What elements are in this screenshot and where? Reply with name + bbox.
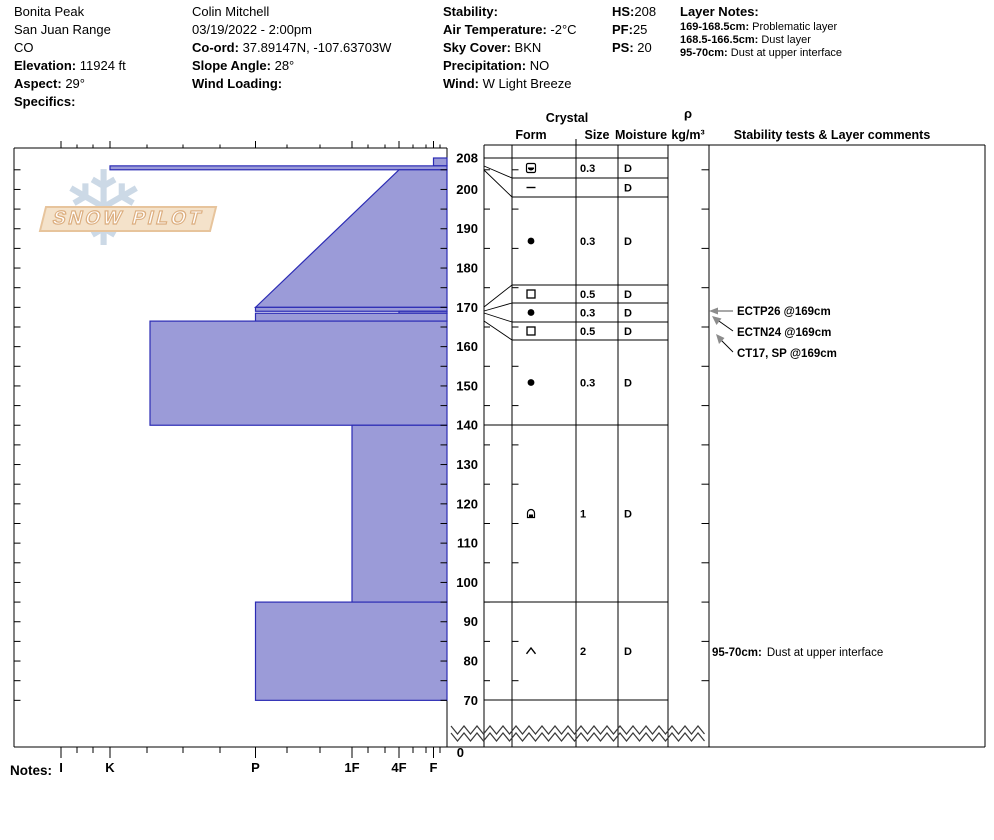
depth-label: 208 bbox=[456, 151, 478, 166]
size-cell: 0.3 bbox=[580, 378, 595, 390]
snowpilot-report: Bonita Peak San Juan Range CO Elevation:… bbox=[0, 0, 994, 840]
depth-label: 200 bbox=[456, 182, 478, 197]
form-symbol-part bbox=[528, 238, 535, 245]
depth-zero-label: 0 bbox=[457, 745, 464, 760]
crystal-header: Crystal bbox=[546, 111, 588, 125]
size-cell: 0.5 bbox=[580, 326, 595, 338]
depth-label: 130 bbox=[456, 457, 478, 472]
form-header: Form bbox=[515, 128, 546, 142]
depth-label: 100 bbox=[456, 575, 478, 590]
hardness-bar bbox=[256, 602, 448, 700]
hardness-bar bbox=[434, 158, 448, 166]
layer-table-cells: 0.3DD0.3D0.5D0.3D0.5D0.3D1D2D bbox=[527, 163, 633, 658]
form-symbol-part bbox=[528, 309, 535, 316]
form-symbol-facets bbox=[527, 327, 535, 335]
hardness-label: K bbox=[105, 760, 115, 775]
stability-test-label: ECTN24 @169cm bbox=[737, 327, 831, 339]
size-cell: 2 bbox=[580, 646, 586, 658]
form-symbol-facets bbox=[527, 290, 535, 298]
depth-label: 90 bbox=[464, 614, 478, 629]
layer-fan-lines bbox=[484, 166, 512, 340]
depth-label: 70 bbox=[464, 693, 478, 708]
depth-label: 170 bbox=[456, 300, 478, 315]
moisture-cell: D bbox=[624, 183, 632, 195]
form-symbol-part bbox=[529, 515, 533, 518]
hardness-label: 4F bbox=[391, 760, 406, 775]
form-symbol-depth-hoar bbox=[527, 648, 536, 654]
size-cell: 0.3 bbox=[580, 163, 595, 175]
size-cell: 0.5 bbox=[580, 289, 595, 301]
notes-label: Notes: bbox=[10, 763, 52, 778]
form-symbol-part bbox=[528, 168, 534, 170]
stability-test-annotations: ECTP26 @169cm ECTN24 @169cm CT17, SP @16… bbox=[709, 306, 837, 360]
depth-label: 140 bbox=[456, 418, 478, 433]
hardness-ramp-layer bbox=[256, 170, 448, 308]
rho-header: ρ bbox=[684, 106, 692, 121]
depth-label: 150 bbox=[456, 378, 478, 393]
snow-profile-chart: Crystal Form Size Moisture ρ kg/m³ Stabi… bbox=[0, 0, 994, 840]
hardness-label: F bbox=[430, 760, 438, 775]
form-symbol-rounded-grains bbox=[528, 379, 535, 386]
form-symbol-rounded-grains bbox=[528, 309, 535, 316]
depth-axis-labels: 2082001901801701601501401301201101009080… bbox=[456, 151, 478, 708]
moisture-cell: D bbox=[624, 326, 632, 338]
moisture-cell: D bbox=[624, 163, 632, 175]
form-symbol-rounded-facets-arch bbox=[528, 510, 535, 518]
form-symbol-part bbox=[528, 379, 535, 386]
hardness-bar bbox=[352, 425, 447, 602]
depth-label: 120 bbox=[456, 496, 478, 511]
form-symbol-rounding-facets bbox=[527, 164, 536, 173]
form-symbol-rounded-grains bbox=[528, 238, 535, 245]
zigzag-line bbox=[451, 726, 705, 734]
moisture-cell: D bbox=[624, 378, 632, 390]
moisture-cell: D bbox=[624, 289, 632, 301]
size-header: Size bbox=[584, 128, 609, 142]
zigzag-line bbox=[451, 733, 705, 741]
size-cell: 0.3 bbox=[580, 236, 595, 248]
depth-label: 190 bbox=[456, 221, 478, 236]
moisture-cell: D bbox=[624, 308, 632, 320]
depth-label: 160 bbox=[456, 339, 478, 354]
moisture-cell: D bbox=[624, 646, 632, 658]
moisture-header: Moisture bbox=[615, 128, 667, 142]
stability-test-label: CT17, SP @169cm bbox=[737, 348, 837, 360]
hardness-bar bbox=[110, 166, 447, 170]
rho-units-header: kg/m³ bbox=[671, 128, 704, 142]
layer-comment: 95-70cm:Dust at upper interface bbox=[712, 647, 883, 659]
hardness-axis-labels: IKP1F4FF bbox=[59, 760, 437, 775]
depth-label: 110 bbox=[457, 536, 478, 551]
hardness-label: 1F bbox=[344, 760, 359, 775]
hardness-label: P bbox=[251, 760, 260, 775]
stability-test-label: ECTP26 @169cm bbox=[737, 306, 831, 318]
hardness-bar bbox=[256, 313, 448, 321]
form-symbol-part bbox=[527, 327, 535, 335]
moisture-cell: D bbox=[624, 236, 632, 248]
depth-label: 180 bbox=[456, 261, 478, 276]
test-arrowhead bbox=[712, 316, 722, 325]
stability-header: Stability tests & Layer comments bbox=[734, 128, 931, 142]
form-symbol-part bbox=[527, 648, 536, 654]
hardness-label: I bbox=[59, 760, 63, 775]
depth-break-zigzag bbox=[451, 726, 705, 741]
hardness-bars bbox=[110, 158, 447, 700]
test-arrowhead bbox=[709, 308, 718, 315]
size-cell: 1 bbox=[580, 509, 586, 521]
moisture-cell: D bbox=[624, 509, 632, 521]
hardness-bar bbox=[150, 321, 447, 425]
form-symbol-part bbox=[527, 290, 535, 298]
depth-label: 80 bbox=[464, 654, 478, 669]
size-cell: 0.3 bbox=[580, 308, 595, 320]
